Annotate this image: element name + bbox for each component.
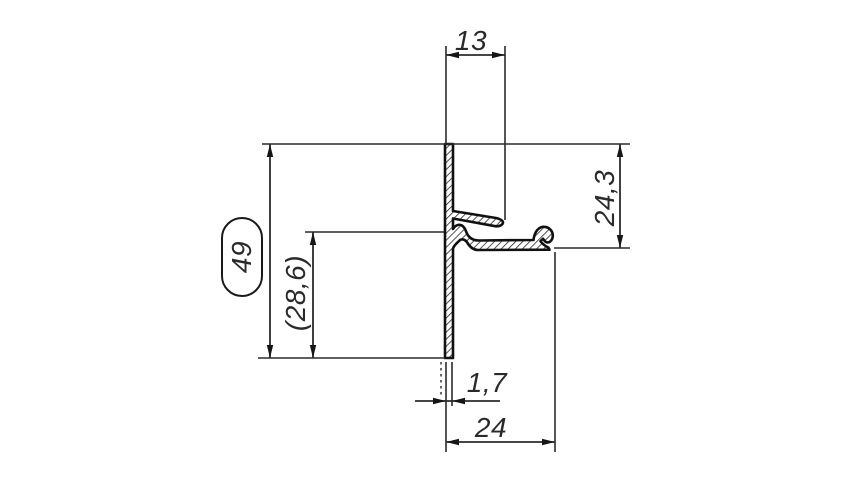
technical-drawing-canvas: 13 24,3 49 (28,6) 1,7 24 (0, 0, 853, 480)
dim-label-bottom-width: 24 (474, 412, 507, 443)
dim-arrow-243-top (617, 144, 623, 157)
dim-label-right-height: 24,3 (589, 170, 620, 228)
dim-arrow-24-right (542, 439, 555, 445)
dim-label-partial-height: (28,6) (280, 255, 311, 331)
dim-arrow-49-bottom (267, 345, 273, 358)
dim-label-wall-thickness: 1,7 (467, 367, 508, 398)
dim-arrow-49-top (267, 144, 273, 157)
dim-arrow-17-right (452, 398, 465, 404)
dim-label-overall-height: 49 (226, 241, 257, 273)
dim-arrow-286-top (310, 232, 316, 245)
dim-arrow-24-left (446, 439, 459, 445)
dim-arrow-286-bottom (310, 345, 316, 358)
dimension-labels: 13 24,3 49 (28,6) 1,7 24 (226, 25, 620, 443)
dim-label-top-width: 13 (455, 25, 487, 56)
dim-arrow-17-left (433, 398, 446, 404)
profile-outline (445, 144, 553, 358)
technical-drawing-page: 13 24,3 49 (28,6) 1,7 24 (0, 0, 853, 480)
profile-section (445, 144, 553, 358)
dim-arrow-243-bottom (617, 235, 623, 248)
dim-arrow-13-right (492, 52, 505, 58)
